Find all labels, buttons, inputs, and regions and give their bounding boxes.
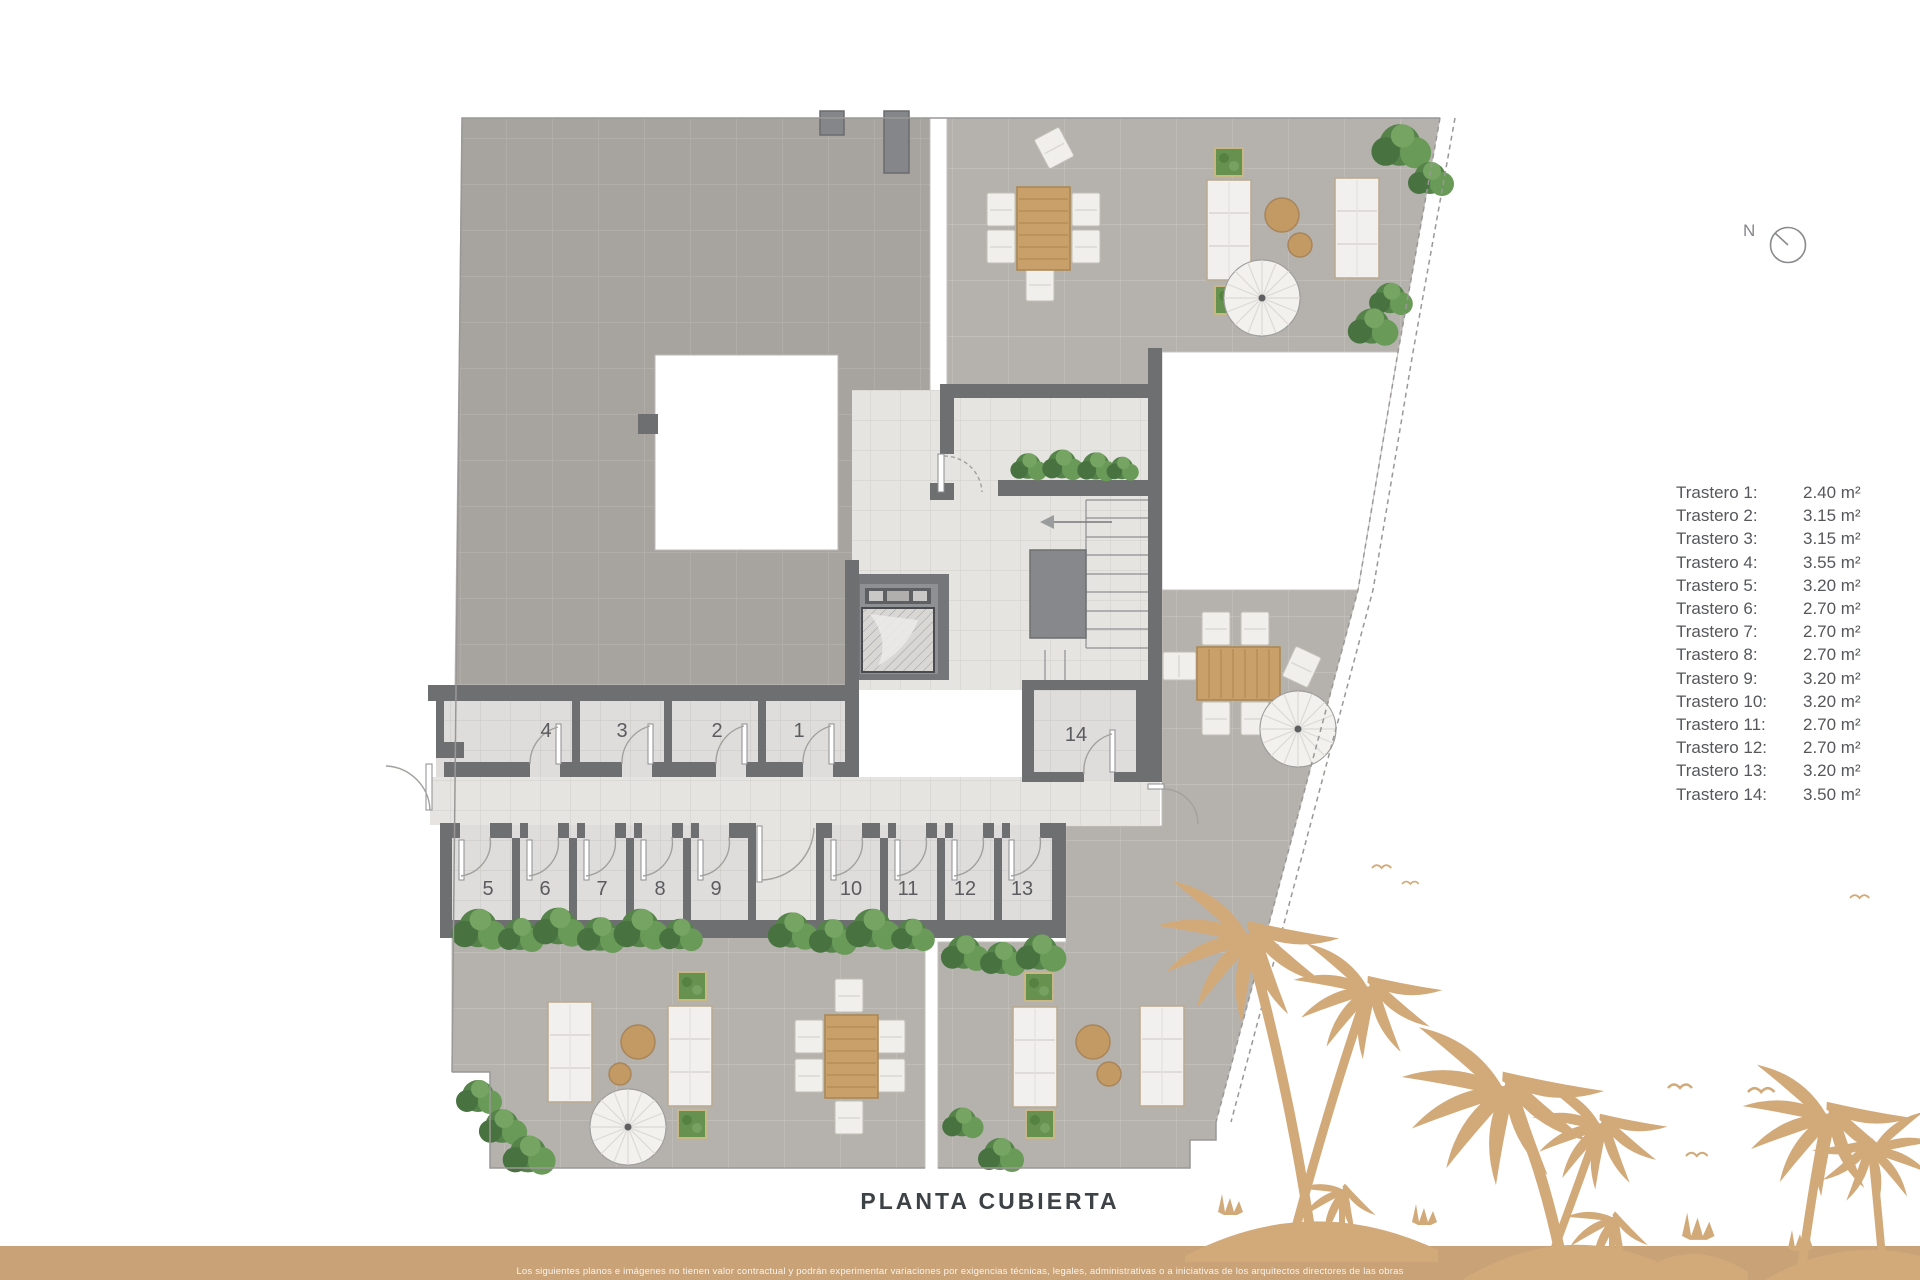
- legend-room-name: Trastero 1:: [1676, 481, 1803, 504]
- legend-row: Trastero 13:3.20 m²: [1676, 759, 1876, 782]
- legend-room-name: Trastero 6:: [1676, 597, 1803, 620]
- legend-room-area: 3.20 m²: [1803, 667, 1861, 690]
- legend-row: Trastero 2:3.15 m²: [1676, 504, 1876, 527]
- room-label-1: 1: [793, 720, 804, 742]
- legend-room-area: 3.20 m²: [1803, 690, 1861, 713]
- legend-room-area: 2.70 m²: [1803, 736, 1861, 759]
- page-title: PLANTA CUBIERTA: [860, 1188, 1119, 1215]
- legend-row: Trastero 14:3.50 m²: [1676, 783, 1876, 806]
- legend-row: Trastero 6:2.70 m²: [1676, 597, 1876, 620]
- room-label-14: 14: [1065, 724, 1087, 746]
- legend-room-area: 3.55 m²: [1803, 551, 1861, 574]
- legend-room-area: 2.70 m²: [1803, 597, 1861, 620]
- legend-room-area: 3.15 m²: [1803, 527, 1861, 550]
- legend-row: Trastero 7:2.70 m²: [1676, 620, 1876, 643]
- legend-room-area: 3.15 m²: [1803, 504, 1861, 527]
- legend-row: Trastero 1:2.40 m²: [1676, 481, 1876, 504]
- room-label-10: 10: [840, 878, 862, 900]
- legend-room-name: Trastero 11:: [1676, 713, 1803, 736]
- room-label-11: 11: [898, 878, 919, 900]
- room-label-2: 2: [711, 720, 722, 742]
- legend-row: Trastero 4:3.55 m²: [1676, 551, 1876, 574]
- palm-silhouettes: [1157, 881, 1920, 1280]
- page: 1 2 3 4 5 6 7 8 9 10 11 12 13 14 N: [0, 0, 1920, 1280]
- room-label-3: 3: [616, 720, 627, 742]
- legend-row: Trastero 5:3.20 m²: [1676, 574, 1876, 597]
- patio-hatch-block: [638, 414, 658, 434]
- legend-room-area: 3.50 m²: [1803, 783, 1861, 806]
- legend-room-name: Trastero 3:: [1676, 527, 1803, 550]
- legend-room-area: 2.70 m²: [1803, 643, 1861, 666]
- storage-area-legend: Trastero 1:2.40 m² Trastero 2:3.15 m² Tr…: [1676, 481, 1876, 806]
- legend-row: Trastero 12:2.70 m²: [1676, 736, 1876, 759]
- legend-room-area: 2.70 m²: [1803, 713, 1861, 736]
- legend-row: Trastero 8:2.70 m²: [1676, 643, 1876, 666]
- room-label-4: 4: [540, 720, 551, 742]
- room-label-8: 8: [654, 878, 665, 900]
- legend-room-area: 3.20 m²: [1803, 574, 1861, 597]
- legend-room-name: Trastero 5:: [1676, 574, 1803, 597]
- room-label-9: 9: [710, 878, 721, 900]
- compass: N: [1733, 206, 1823, 268]
- legend-room-name: Trastero 2:: [1676, 504, 1803, 527]
- room-label-5: 5: [482, 878, 493, 900]
- stair-well: [1030, 550, 1086, 638]
- legend-room-name: Trastero 12:: [1676, 736, 1803, 759]
- legend-row: Trastero 10:3.20 m²: [1676, 690, 1876, 713]
- room-label-13: 13: [1011, 878, 1033, 900]
- elevator: [849, 574, 949, 680]
- compass-north-label: N: [1743, 221, 1755, 240]
- room-label-7: 7: [596, 878, 607, 900]
- legend-room-name: Trastero 4:: [1676, 551, 1803, 574]
- patio-void: [655, 355, 838, 550]
- palm-trees-graphic: [1150, 810, 1920, 1280]
- legend-row: Trastero 3:3.15 m²: [1676, 527, 1876, 550]
- legend-row: Trastero 9:3.20 m²: [1676, 667, 1876, 690]
- legend-room-name: Trastero 10:: [1676, 690, 1803, 713]
- room14-floor: [1030, 688, 1148, 780]
- legend-room-name: Trastero 9:: [1676, 667, 1803, 690]
- corridor-floor: [430, 777, 1160, 825]
- legend-room-area: 2.70 m²: [1803, 620, 1861, 643]
- room-label-6: 6: [539, 878, 550, 900]
- legend-room-name: Trastero 13:: [1676, 759, 1803, 782]
- room-label-12: 12: [954, 878, 976, 900]
- void-right: [1162, 352, 1398, 590]
- legend-room-area: 2.40 m²: [1803, 481, 1861, 504]
- legend-row: Trastero 11:2.70 m²: [1676, 713, 1876, 736]
- legend-room-name: Trastero 8:: [1676, 643, 1803, 666]
- legend-room-area: 3.20 m²: [1803, 759, 1861, 782]
- legend-room-name: Trastero 7:: [1676, 620, 1803, 643]
- legend-room-name: Trastero 14:: [1676, 783, 1803, 806]
